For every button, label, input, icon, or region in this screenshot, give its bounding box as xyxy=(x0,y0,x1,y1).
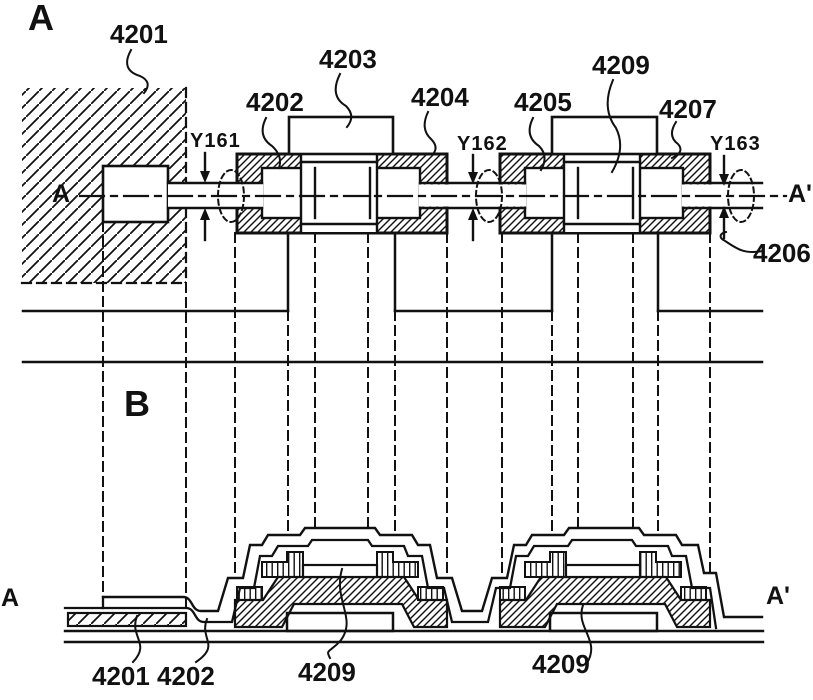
view-b-label: B xyxy=(124,386,150,422)
plan-gate-rect-4209 xyxy=(552,117,657,154)
ref-4201-plan: 4201 xyxy=(110,21,168,47)
projection-lines xyxy=(103,222,710,606)
ref-4209-section-right: 4209 xyxy=(532,651,590,677)
section-marker-a-section: A xyxy=(1,586,19,611)
section-gate-tft1 xyxy=(287,613,393,631)
plan-gate-lines xyxy=(23,311,762,362)
plan-gate-rect-4203 xyxy=(289,117,393,154)
dim-label-y161: Y161 xyxy=(190,131,241,151)
section-channel-protect-tft2 xyxy=(566,565,640,577)
section-wiring-4201 xyxy=(68,613,186,626)
section-substrate xyxy=(65,631,763,642)
patent-figure: A 4201 4203 4202 4204 4205 4209 4207 Y16… xyxy=(0,0,813,700)
dim-label-y162: Y162 xyxy=(457,134,508,154)
ref-4206: 4206 xyxy=(753,240,811,266)
plan-view xyxy=(22,50,786,606)
ref-4209-section-left: 4209 xyxy=(298,659,356,685)
section-gate-tft2 xyxy=(550,613,657,631)
view-a-label: A xyxy=(28,0,54,36)
plan-contact-square xyxy=(103,166,168,222)
ref-4205: 4205 xyxy=(514,89,572,115)
dim-label-y163: Y163 xyxy=(710,134,761,154)
plan-tft1 xyxy=(237,117,447,311)
leader-4201-plan xyxy=(127,50,148,93)
ref-4209-plan: 4209 xyxy=(592,52,650,78)
leader-4202-section xyxy=(196,619,208,662)
section-marker-a-plan: A xyxy=(52,182,70,207)
ref-4201-section: 4201 xyxy=(92,663,150,689)
ref-4203: 4203 xyxy=(319,46,377,72)
section-marker-aprime-plan: A' xyxy=(788,182,812,207)
section-view xyxy=(65,528,763,663)
ref-4202-section: 4202 xyxy=(157,663,215,689)
ref-4207: 4207 xyxy=(659,96,717,122)
ref-4204: 4204 xyxy=(411,84,469,110)
ref-4202-plan: 4202 xyxy=(246,89,304,115)
section-marker-aprime-section: A' xyxy=(766,584,790,609)
leader-4204 xyxy=(425,112,436,154)
